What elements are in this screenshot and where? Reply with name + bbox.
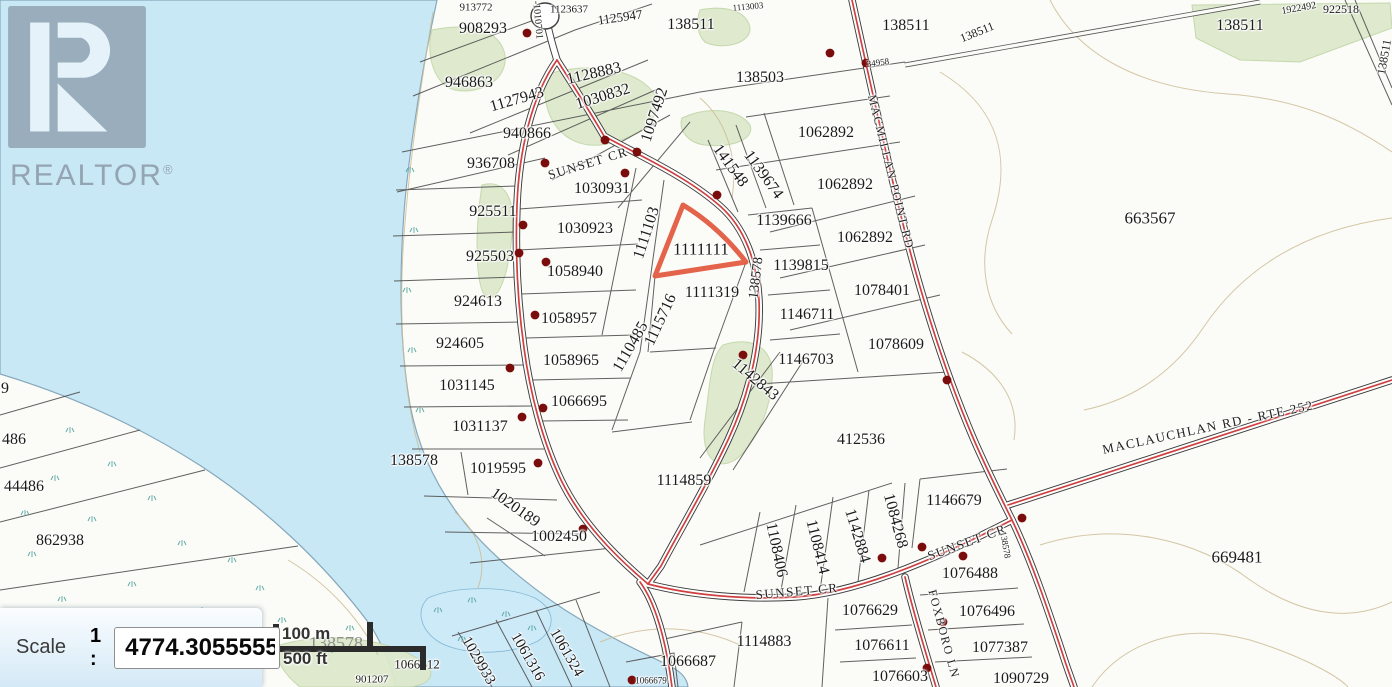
address-point-dot xyxy=(739,351,748,360)
scale-ratio-prefix: 1 : xyxy=(90,625,101,671)
wetland-tuft-icon xyxy=(256,585,264,591)
address-point-dot xyxy=(518,413,527,422)
map-canvas[interactable] xyxy=(0,0,1392,687)
address-point-dot xyxy=(939,618,948,627)
wetland-tuft-icon xyxy=(416,407,424,413)
address-point-dot xyxy=(541,159,550,168)
address-point-dot xyxy=(519,221,528,230)
address-point-dot xyxy=(633,148,642,157)
address-point-dot xyxy=(601,136,610,145)
wetland-tuft-icon xyxy=(228,557,236,563)
address-point-dot xyxy=(943,376,952,385)
map-viewport: 913772908293-101070111236371125947138511… xyxy=(0,0,1392,687)
wetland-tuft-icon xyxy=(66,427,74,433)
address-point-dot xyxy=(539,404,548,413)
scale-label: Scale xyxy=(16,636,66,659)
address-point-dot xyxy=(918,543,927,552)
wetland-tuft-icon xyxy=(88,516,96,522)
address-point-dot xyxy=(515,249,524,258)
wetland-tuft-icon xyxy=(148,495,156,501)
wetland-tuft-icon xyxy=(410,227,418,233)
realtor-wordmark: REALTOR® xyxy=(10,159,175,193)
address-point-dot xyxy=(534,459,543,468)
scale-control-panel: Scale 1 : xyxy=(0,608,262,687)
wetland-tuft-icon xyxy=(128,581,136,587)
wetland-tuft-icon xyxy=(403,287,411,293)
address-point-dot xyxy=(826,49,835,58)
address-point-dot xyxy=(862,59,871,68)
address-point-dot xyxy=(506,364,515,373)
address-point-dot xyxy=(878,554,887,563)
pond xyxy=(421,589,551,653)
address-point-dot xyxy=(621,169,630,178)
scale-value-input[interactable] xyxy=(114,627,280,669)
realtor-watermark: REALTOR® xyxy=(8,6,175,193)
scale-bar-metric-label: 100 m xyxy=(282,624,330,644)
address-point-dot xyxy=(531,311,540,320)
address-point-dot xyxy=(523,29,532,38)
address-point-dot xyxy=(628,676,637,685)
wetland-tuft-icon xyxy=(28,551,36,557)
scale-bar-imperial-label: 500 ft xyxy=(283,649,327,669)
address-point-dot xyxy=(579,525,588,534)
registered-mark: ® xyxy=(163,162,175,177)
wetland-tuft-icon xyxy=(108,461,116,467)
wetland-tuft-icon xyxy=(178,540,186,546)
address-point-dot xyxy=(959,552,968,561)
address-point-dot xyxy=(923,664,932,673)
realtor-logo-icon xyxy=(8,6,146,148)
wetland-tuft-icon xyxy=(51,475,59,481)
wetland-tuft-icon xyxy=(58,596,66,602)
wetland-tuft-icon xyxy=(408,347,416,353)
address-point-dot xyxy=(1018,514,1027,523)
address-point-dot xyxy=(542,258,551,267)
address-point-dot xyxy=(713,191,722,200)
